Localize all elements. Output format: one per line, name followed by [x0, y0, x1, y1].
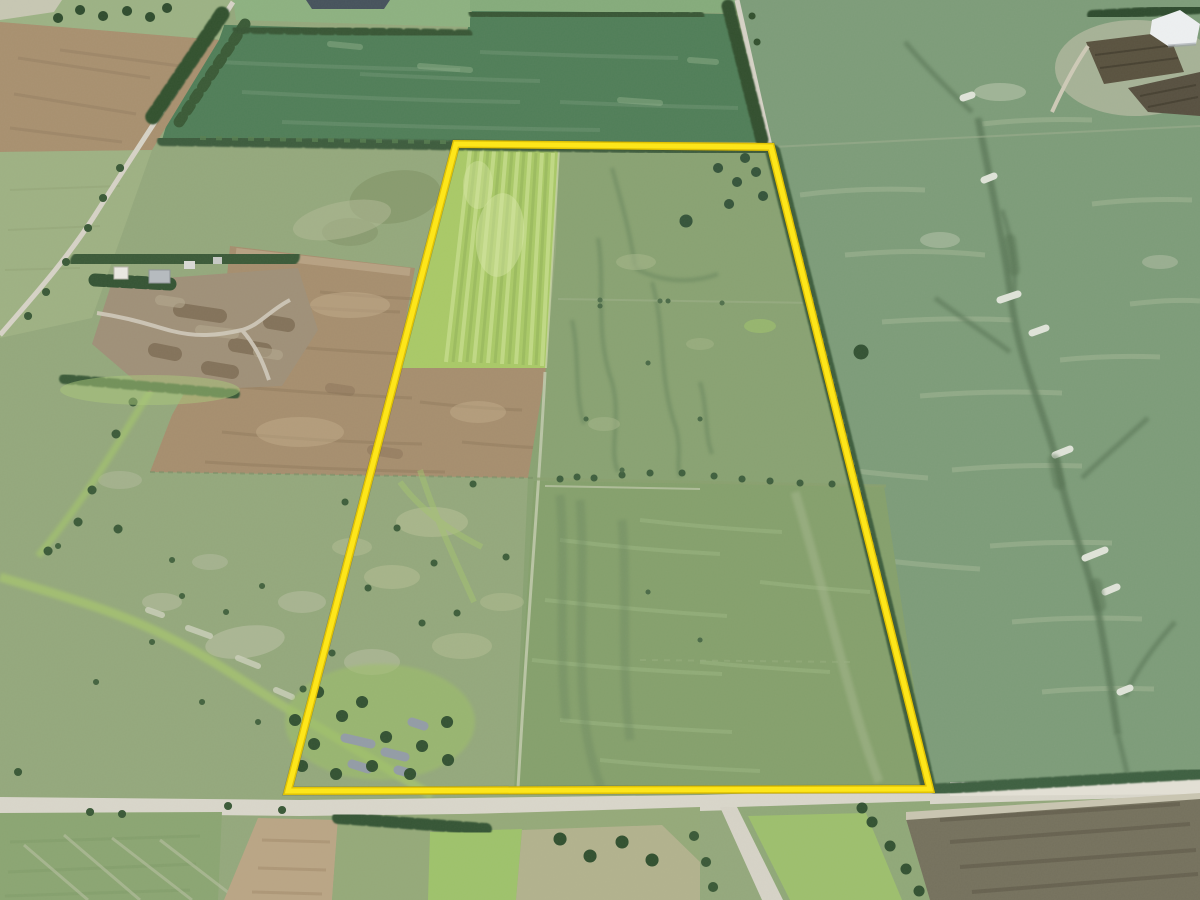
aerial-photo [0, 0, 1200, 900]
photo-grain-overlay [0, 0, 1200, 900]
aerial-photo-stage [0, 0, 1200, 900]
